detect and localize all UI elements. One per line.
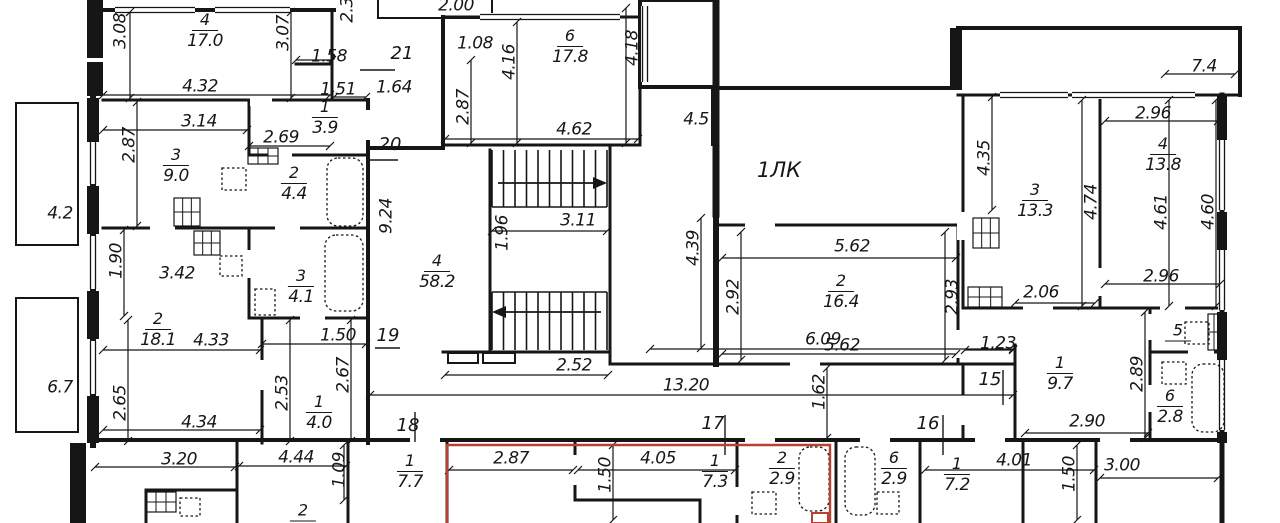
floor-plan-drawing [0,0,1280,523]
stair-lobby-label: 1ЛК [757,158,801,182]
highlighted-apartment[interactable] [447,445,830,523]
floor-plan-canvas: 3.083.072.31.584.321.513.142.692.874.21.… [0,0,1280,523]
highlighted-apartment-door [812,513,828,523]
